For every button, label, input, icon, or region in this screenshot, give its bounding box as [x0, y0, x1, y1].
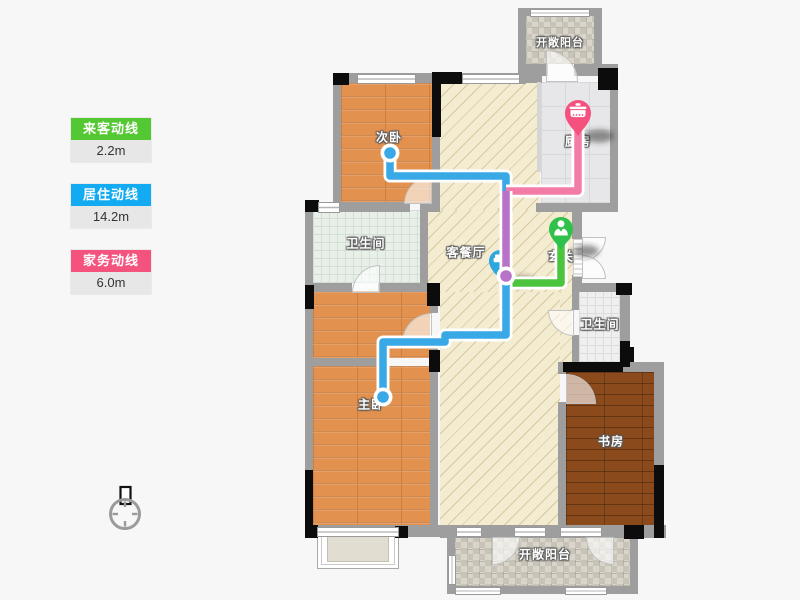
floorplan-canvas: 来客动线 2.2m 居住动线 14.2m 家务动线 6.0m	[0, 0, 800, 600]
pin-shadow	[584, 130, 614, 143]
route-endpoint	[377, 391, 389, 403]
legend-housework-label: 家务动线	[71, 250, 151, 272]
compass-ticks	[113, 502, 138, 527]
route-endpoint	[384, 147, 396, 159]
legend-living-label: 居住动线	[71, 184, 151, 206]
legend-housework-value: 6.0m	[71, 272, 151, 294]
legend: 来客动线 2.2m 居住动线 14.2m 家务动线 6.0m	[71, 118, 151, 316]
legend-visitor-value: 2.2m	[71, 140, 151, 162]
legend-visitor-label: 来客动线	[71, 118, 151, 140]
route-overlap	[497, 191, 516, 286]
route-endpoint	[500, 270, 512, 282]
compass	[111, 487, 140, 529]
route-visitor	[512, 240, 561, 283]
legend-item-housework: 家务动线 6.0m	[71, 250, 151, 294]
entrance-pin[interactable]	[549, 217, 573, 250]
route-housework	[506, 128, 578, 191]
legend-living-value: 14.2m	[71, 206, 151, 228]
kitchen-pin[interactable]	[565, 100, 591, 136]
legend-item-living: 居住动线 14.2m	[71, 184, 151, 228]
route-living	[374, 144, 507, 407]
legend-item-visitor: 来客动线 2.2m	[71, 118, 151, 162]
pin-shadow	[573, 245, 599, 257]
